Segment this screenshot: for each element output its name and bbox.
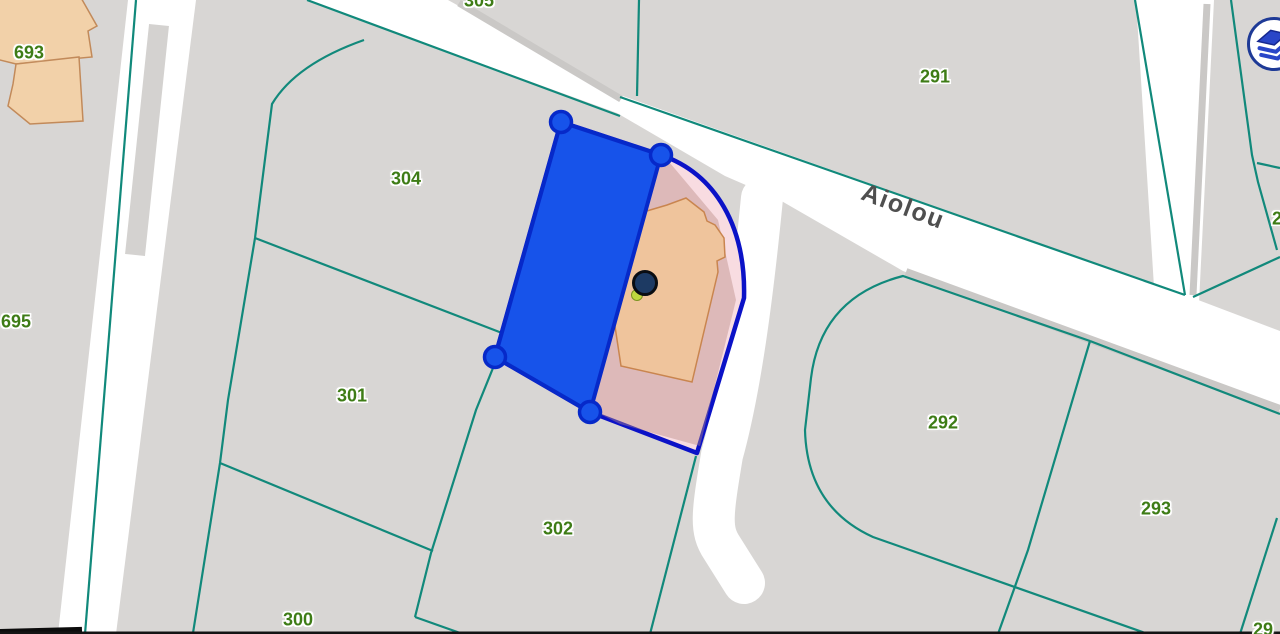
map-canvas[interactable]: 693 695 304 301 302 300 305 291 292 293 … [0,0,1280,634]
location-marker[interactable] [634,272,657,295]
layers-icon [1249,19,1280,73]
vertex-handle[interactable] [485,347,506,368]
street-aiolou [306,0,1280,411]
vertex-handle[interactable] [551,112,572,133]
cadastral-map[interactable] [0,0,1280,634]
building-footprint-693 [0,0,97,124]
vertex-handle[interactable] [651,145,672,166]
layers-button[interactable] [1247,17,1280,71]
vertex-handle[interactable] [580,402,601,423]
